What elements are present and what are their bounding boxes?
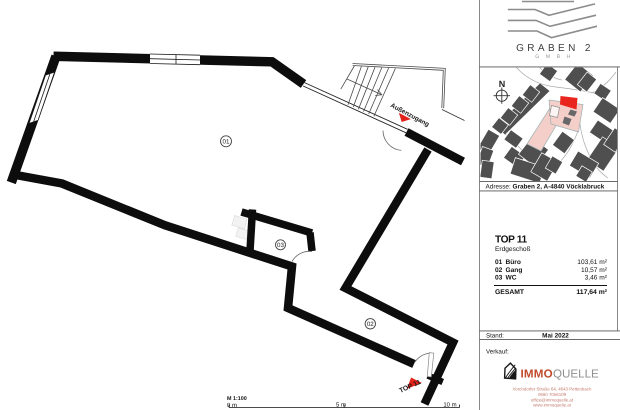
svg-text:01: 01 xyxy=(223,139,230,146)
svg-text:Stand:: Stand: xyxy=(486,333,504,340)
svg-text:117,64 m²: 117,64 m² xyxy=(576,289,607,296)
svg-text:Verkauf:: Verkauf: xyxy=(486,349,509,356)
svg-text:GESAMT: GESAMT xyxy=(495,289,525,296)
svg-text:GMBH: GMBH xyxy=(535,54,577,60)
svg-text:M 1:100: M 1:100 xyxy=(227,396,247,402)
svg-text:TOP 11: TOP 11 xyxy=(495,234,528,245)
svg-text:Mai 2022: Mai 2022 xyxy=(542,332,569,339)
svg-text:GRABEN 2: GRABEN 2 xyxy=(516,43,594,54)
svg-text:Vorchdorfer Straße 64, 4643 Pe: Vorchdorfer Straße 64, 4643 Pettenbach xyxy=(513,387,592,392)
svg-text:10,57 m²: 10,57 m² xyxy=(581,267,608,274)
svg-text:03: 03 xyxy=(495,275,503,282)
svg-text:Adresse: Graben 2, A-4840 Vöck: Adresse: Graben 2, A-4840 Vöcklabruck xyxy=(486,184,605,191)
svg-text:WC: WC xyxy=(506,275,517,282)
svg-text:3,46 m²: 3,46 m² xyxy=(585,275,608,282)
svg-text:Erdgeschoß: Erdgeschoß xyxy=(495,246,531,253)
svg-text:02: 02 xyxy=(495,267,503,274)
svg-text:Gang: Gang xyxy=(506,267,523,274)
svg-text:QUELLE: QUELLE xyxy=(553,368,599,381)
svg-text:IMMO: IMMO xyxy=(521,368,553,381)
svg-text:103,61 m²: 103,61 m² xyxy=(577,259,607,266)
svg-text:02: 02 xyxy=(367,321,374,328)
svg-text:03: 03 xyxy=(277,242,284,249)
svg-text:office@immoquelle.at: office@immoquelle.at xyxy=(531,397,574,402)
svg-text:0660 7056109: 0660 7056109 xyxy=(538,392,567,397)
svg-text:Büro: Büro xyxy=(506,259,521,266)
svg-text:01: 01 xyxy=(495,259,503,266)
svg-text:www.immoquelle.at: www.immoquelle.at xyxy=(533,403,572,408)
